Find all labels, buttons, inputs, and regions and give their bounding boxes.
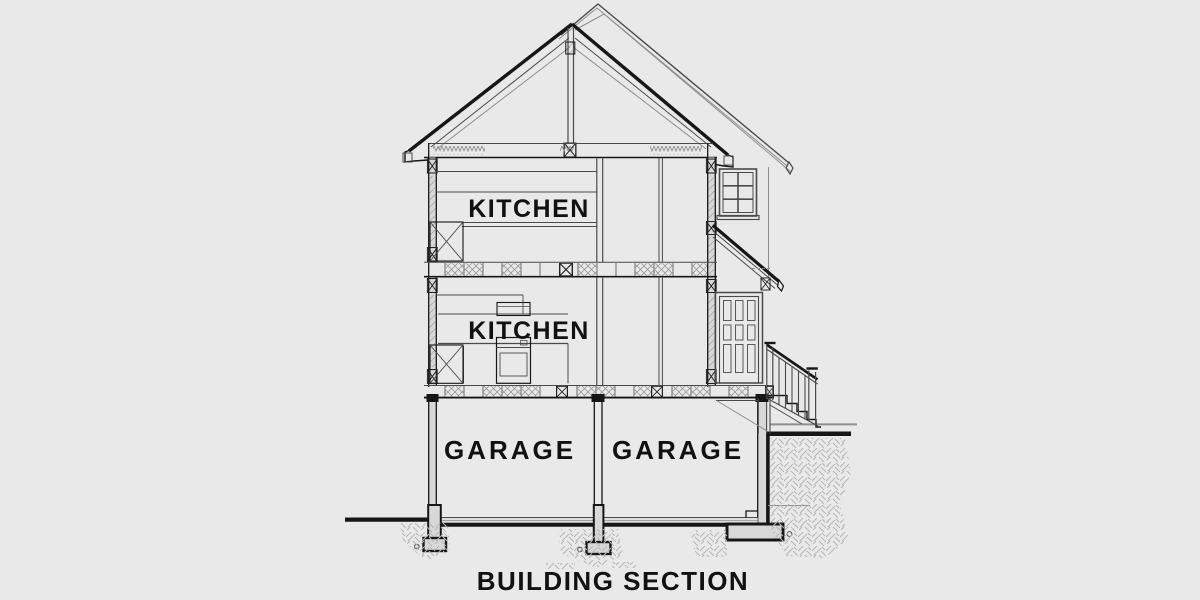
window [717,169,759,220]
left-wall-section [427,143,437,387]
building-section-drawing: KITCHEN [0,0,1200,600]
entry-door [716,293,763,384]
garage-right-label: GARAGE [612,435,744,465]
attic-ceiling-band [424,144,717,158]
second-floor-band [424,262,717,276]
upper-kitchen-label: KITCHEN [468,195,590,223]
king-post [564,28,576,157]
upper-kitchen-room: KITCHEN [430,158,662,263]
garage-left-label: GARAGE [444,435,576,465]
drawing-title: BUILDING SECTION [477,566,749,596]
stair-railing [765,343,819,426]
main-kitchen-room: KITCHEN [430,277,662,386]
section-canvas: KITCHEN [0,0,1200,600]
roof-section [403,24,733,167]
left-eave [403,149,428,162]
main-kitchen-label: KITCHEN [468,317,590,345]
porch-roof [713,226,784,292]
